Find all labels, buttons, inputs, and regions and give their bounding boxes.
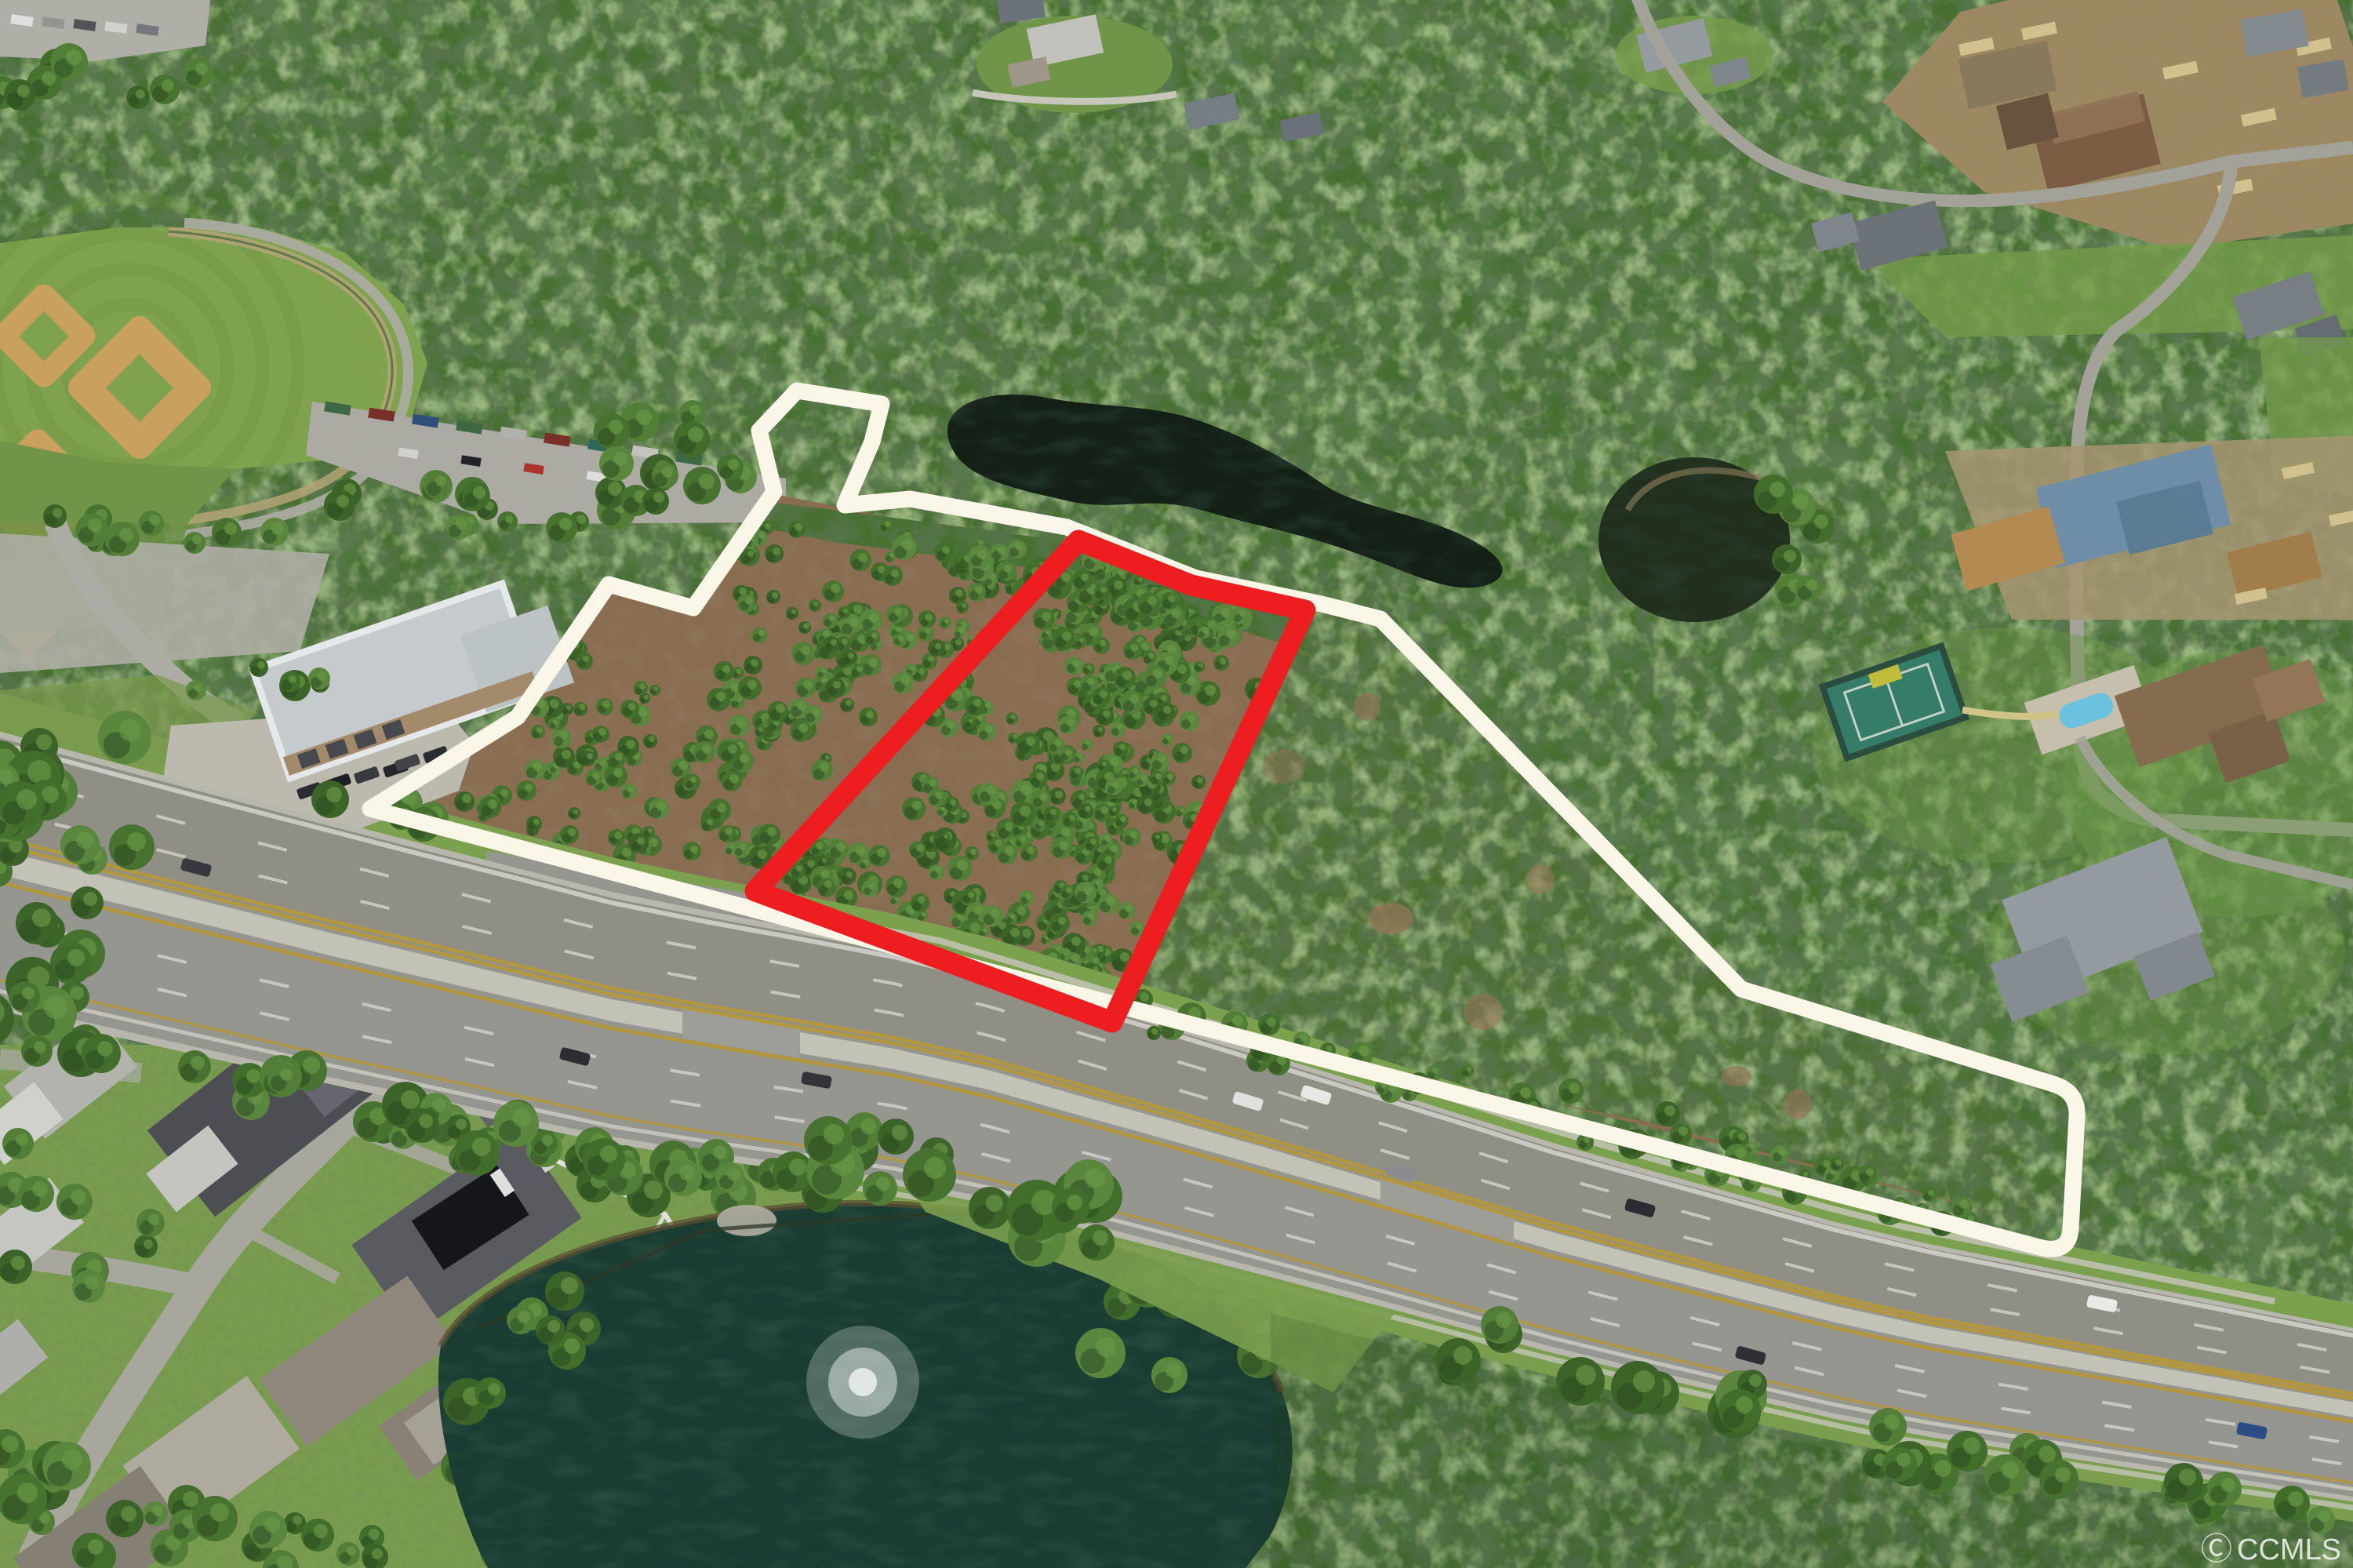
svg-text:Ⓒ: Ⓒ — [2201, 1532, 2232, 1566]
svg-text:CCMLS: CCMLS — [2237, 1533, 2341, 1566]
